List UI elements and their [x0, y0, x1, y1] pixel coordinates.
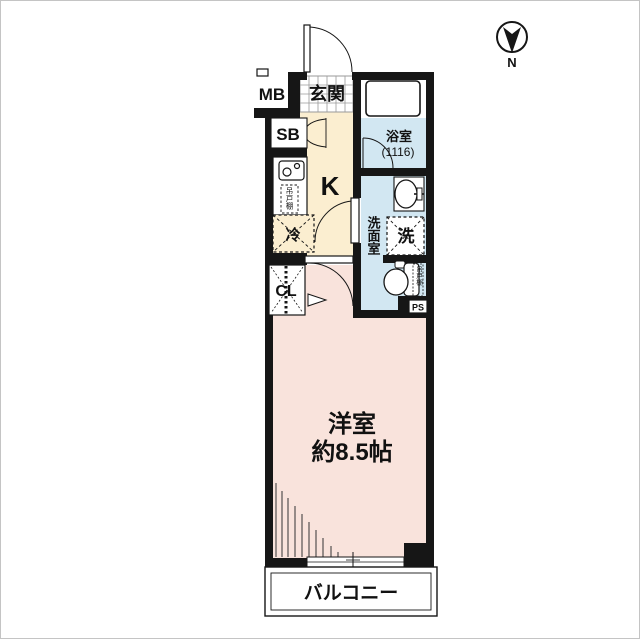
genkan-label: 玄関	[309, 83, 345, 104]
wall-stub	[257, 69, 268, 76]
washbasin-icon	[394, 177, 424, 211]
washing-machine-space: 洗	[387, 217, 424, 255]
balcony: バルコニー	[265, 567, 437, 616]
western-room-label: 洋室	[328, 410, 376, 438]
closet-label: CL	[275, 283, 297, 300]
balcony-label: バルコニー	[304, 582, 399, 604]
bathroom-size: (1116)	[382, 145, 415, 159]
kitchen-counter: 吊戸棚	[273, 157, 307, 215]
pipe-space-label: PS	[412, 303, 424, 313]
hanging-cupboard-label-kitchen: 吊戸棚	[285, 187, 294, 211]
kitchen-label: K	[321, 171, 340, 201]
floor-plan-drawing: 吊戸棚 冷 CL 洗 吊戸棚 PS	[0, 0, 640, 639]
washer-label: 洗	[398, 226, 415, 246]
pipe-space: PS	[409, 300, 427, 313]
washroom-label: 洗面室	[366, 215, 381, 256]
bathtub-icon	[366, 81, 420, 116]
compass-north-label: N	[507, 55, 516, 70]
western-room-size: 約8.5帖	[311, 438, 392, 466]
shoe-box: SB	[271, 118, 307, 148]
floor-plan: 吊戸棚 冷 CL 洗 吊戸棚 PS	[0, 0, 640, 639]
refrigerator-space: 冷	[273, 215, 314, 252]
meter-box-label: MB	[259, 85, 285, 104]
refrigerator-label: 冷	[285, 226, 300, 244]
bathroom-label: 浴室	[386, 129, 412, 144]
closet: CL	[269, 265, 305, 315]
shoe-box-label: SB	[276, 125, 300, 144]
